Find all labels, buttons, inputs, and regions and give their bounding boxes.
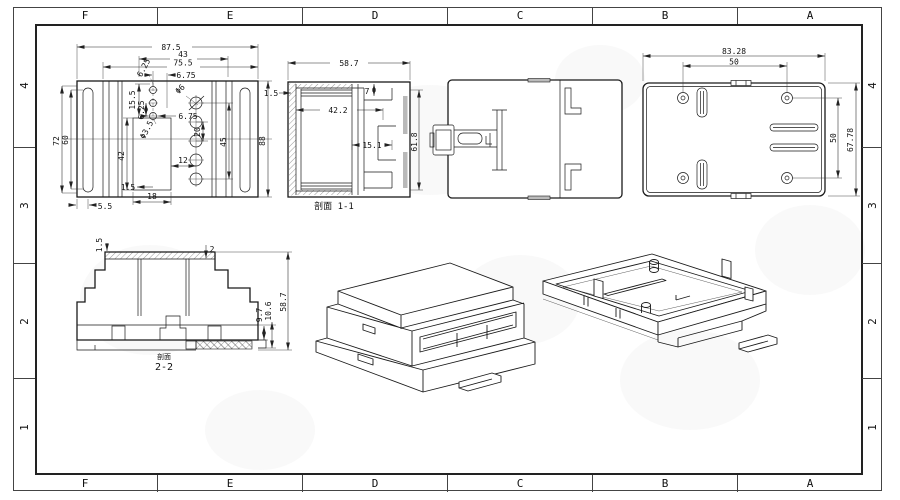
grid-row-3: 3: [13, 148, 35, 263]
grid-col-e-bottom: E: [158, 475, 303, 492]
grid-col-b-bottom: B: [593, 475, 738, 492]
grid-col-f-bottom: F: [13, 475, 158, 492]
grid-row-2-right: 2: [862, 264, 882, 379]
grid-col-c: C: [448, 7, 593, 24]
grid-col-d-bottom: D: [303, 475, 448, 492]
grid-row-2: 2: [13, 264, 35, 379]
grid-col-c-bottom: C: [448, 475, 593, 492]
grid-row-1: 1: [13, 379, 35, 475]
grid-band-top: F E D C B A: [13, 7, 882, 24]
grid-row-4-right: 4: [862, 24, 882, 148]
drawing-sheet: 87.5 43 75.5 6.75 6.75 6.25 Φ6 Φ3.5 15.5…: [0, 0, 900, 500]
grid-col-e: E: [158, 7, 303, 24]
grid-band-left: 4 3 2 1: [13, 24, 35, 475]
grid-col-d: D: [303, 7, 448, 24]
grid-col-b: B: [593, 7, 738, 24]
grid-row-1-right: 1: [862, 379, 882, 475]
sheet-border-inner: [35, 24, 863, 475]
grid-col-a-bottom: A: [738, 475, 882, 492]
grid-band-right: 4 3 2 1: [862, 24, 882, 475]
grid-row-3-right: 3: [862, 148, 882, 263]
grid-row-4: 4: [13, 24, 35, 148]
grid-col-f: F: [13, 7, 158, 24]
grid-band-bottom: F E D C B A: [13, 475, 882, 492]
grid-col-a: A: [738, 7, 882, 24]
